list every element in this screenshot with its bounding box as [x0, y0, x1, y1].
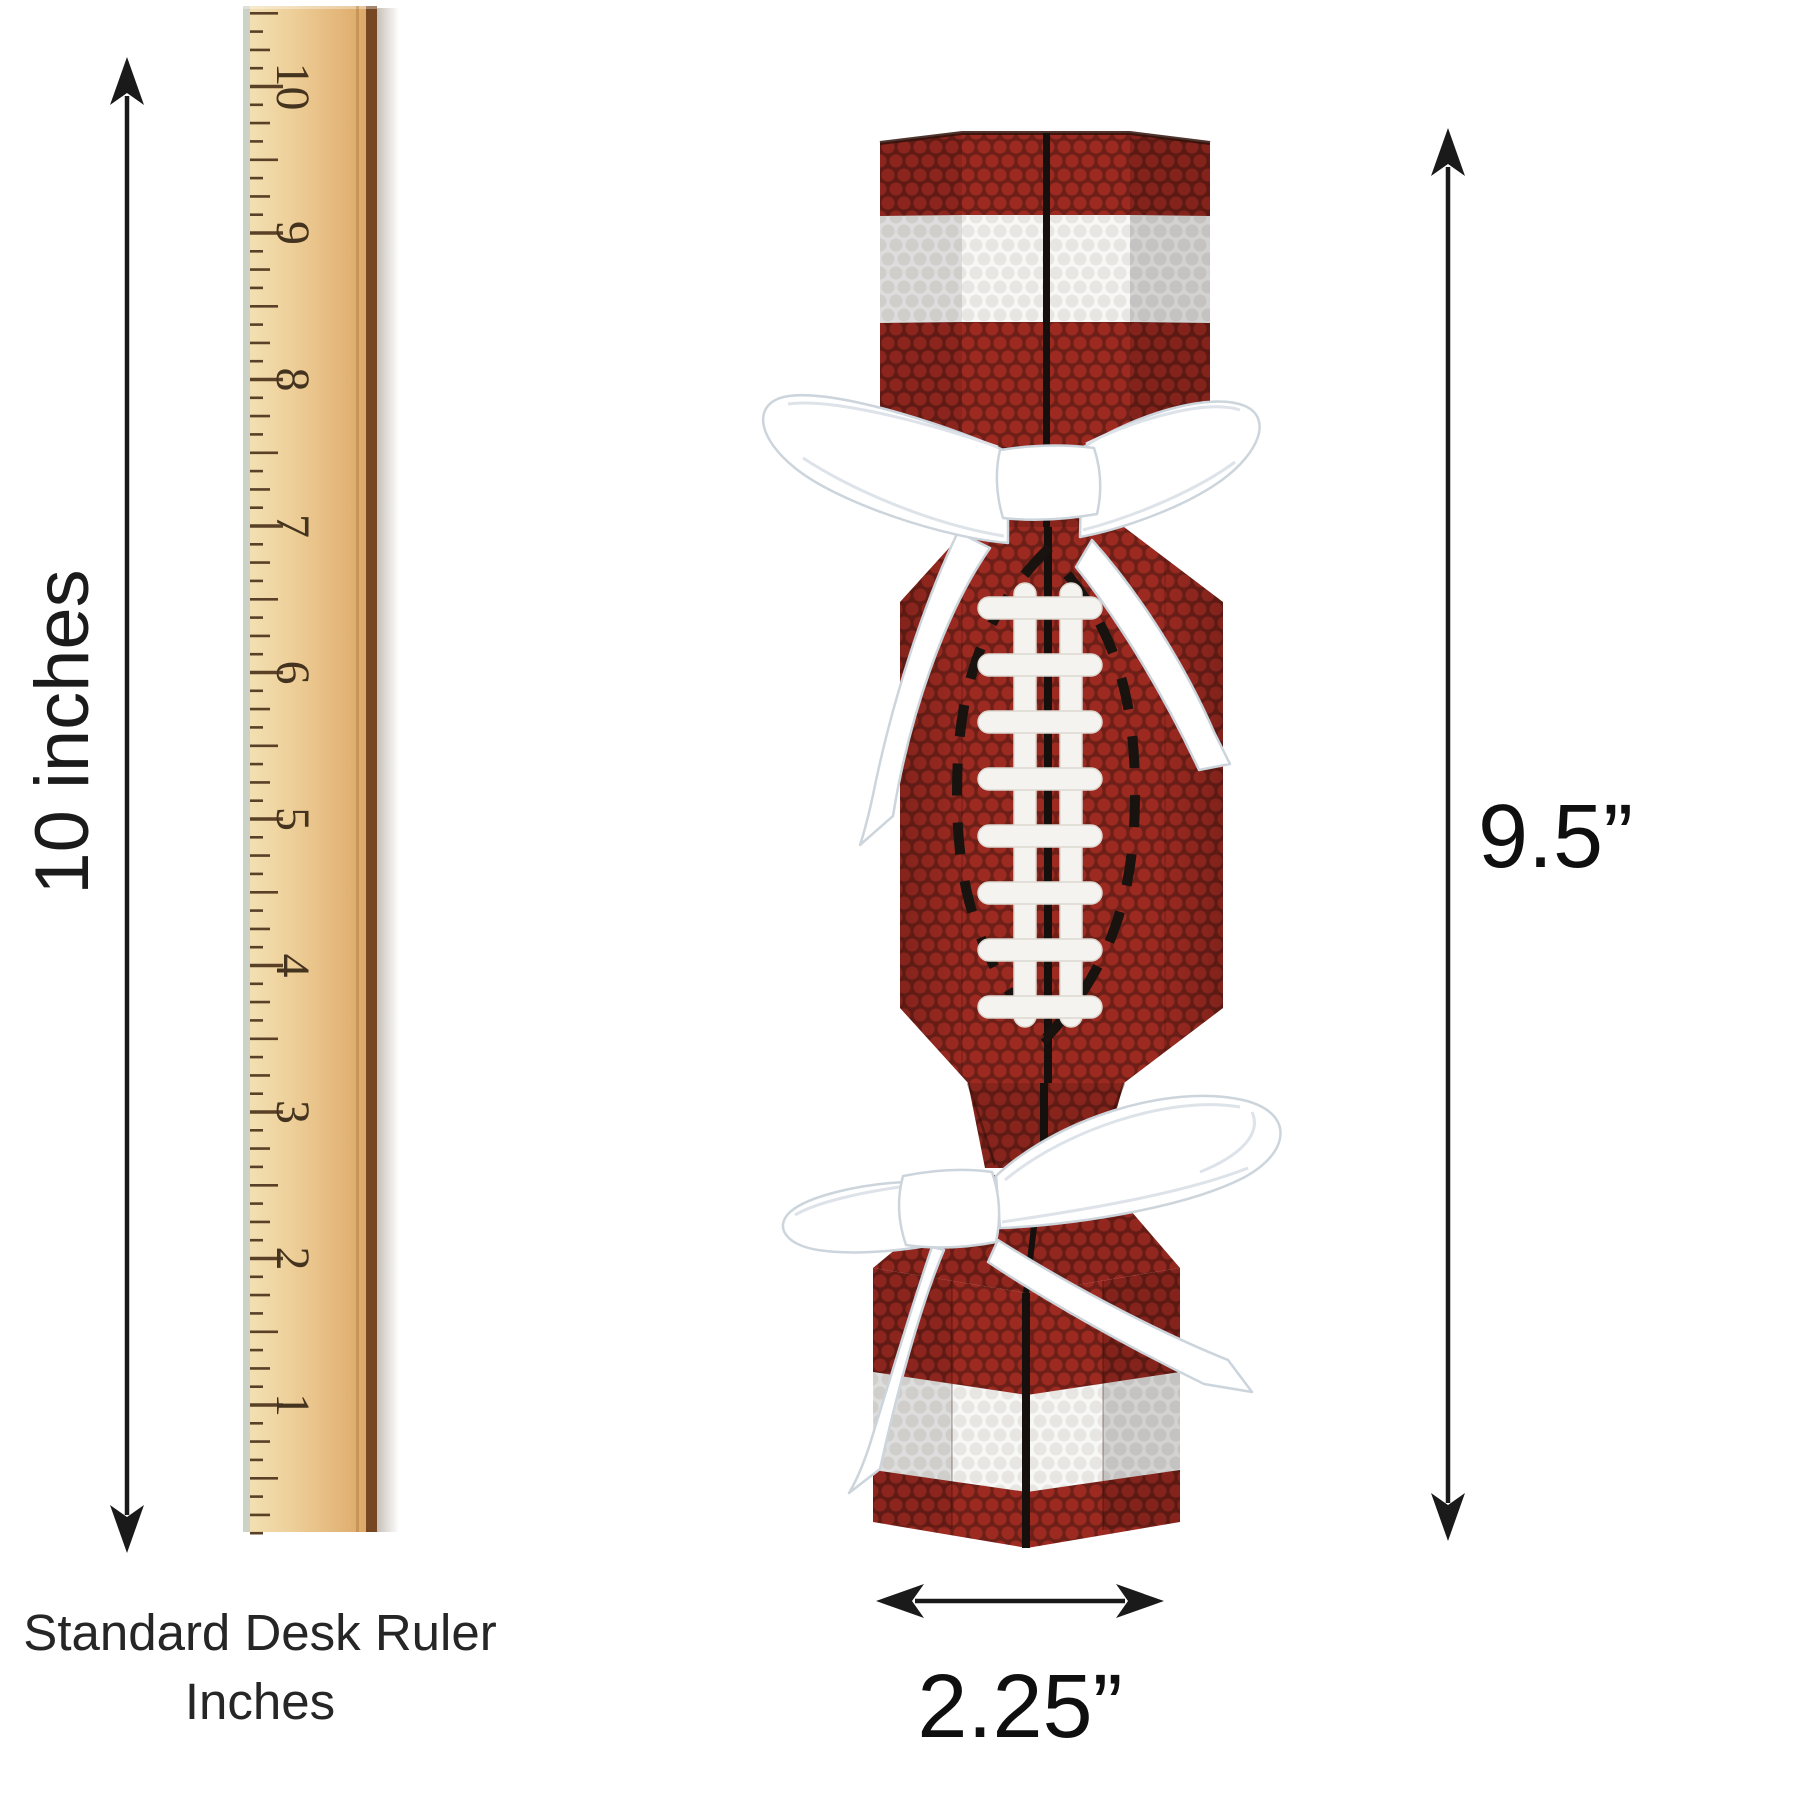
ruler-length-label: 10 inches	[18, 532, 108, 932]
ruler-caption-line2: Inches	[5, 1667, 515, 1736]
ruler-caption-line1: Standard Desk Ruler	[5, 1598, 515, 1667]
ruler-number-4: 4	[266, 954, 319, 978]
product-size-diagram: 10987654321	[0, 0, 1800, 1800]
product-width-label: 2.25”	[870, 1656, 1170, 1759]
ruler-caption: Standard Desk Ruler Inches	[5, 1598, 515, 1737]
football-seam-bottom	[1022, 1293, 1030, 1548]
party-cracker-box	[763, 133, 1280, 1548]
ruler-number-10: 10	[266, 63, 319, 111]
ruler-shadow	[377, 8, 399, 1532]
ruler-number-2: 2	[266, 1247, 319, 1271]
ruler-number-8: 8	[266, 368, 319, 392]
product-height-arrow	[1431, 128, 1465, 1541]
football-seam-top	[1043, 133, 1050, 447]
ruler-number-3: 3	[266, 1100, 319, 1124]
ruler-right-edge	[366, 6, 377, 1532]
product-width-arrow	[876, 1584, 1164, 1618]
ruler-height-arrow	[110, 57, 144, 1553]
ruler-number-7: 7	[266, 514, 319, 538]
ruler-number-5: 5	[266, 807, 319, 831]
bow-knot	[997, 446, 1100, 520]
ruler-left-edge	[243, 6, 250, 1532]
product-height-label: 9.5”	[1478, 786, 1633, 889]
ruler-number-6: 6	[266, 661, 319, 685]
bow-knot	[899, 1170, 999, 1247]
ruler-number-1: 1	[266, 1393, 319, 1417]
cracker-top-cap	[880, 133, 1210, 447]
ruler-graphic: 10987654321	[243, 6, 399, 1533]
ruler-number-9: 9	[266, 221, 319, 245]
size-diagram-canvas: 10987654321	[0, 0, 1800, 1800]
